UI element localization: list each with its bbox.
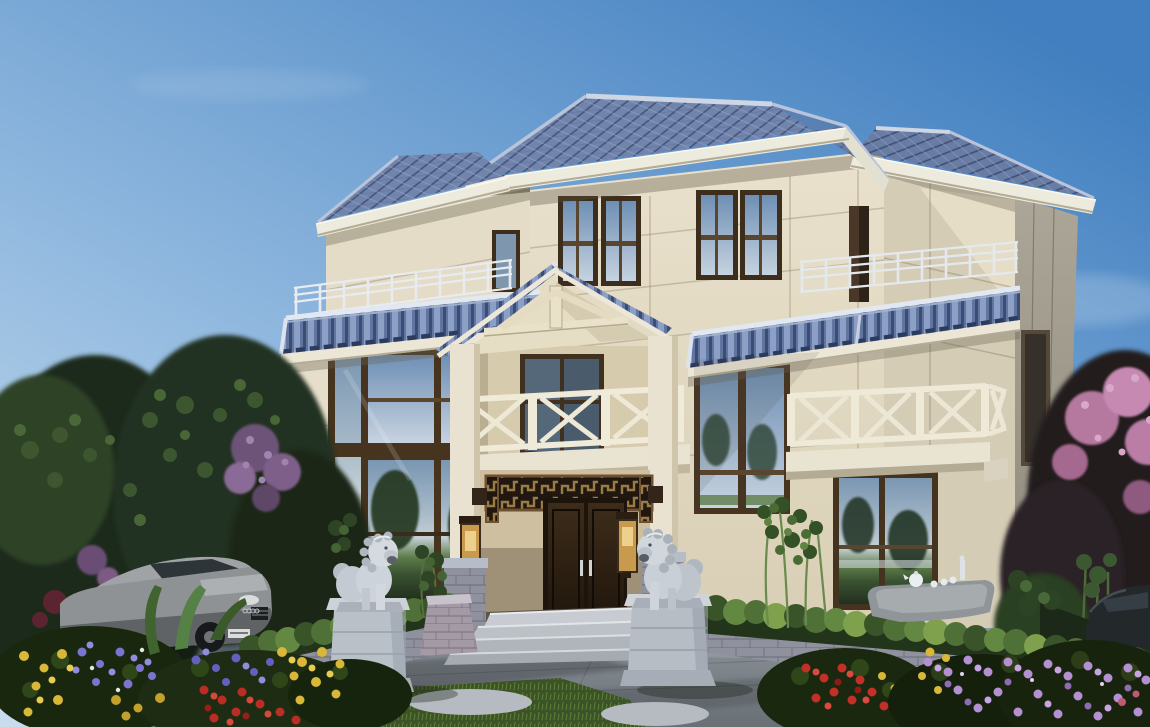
villa-rendering-stage: Daytime architectural rendering of a thr…: [0, 0, 1150, 727]
door-handle-left: [580, 560, 583, 576]
entrance-double-door: [543, 498, 627, 626]
door-handle-right: [589, 560, 592, 576]
wall-lantern-right: [616, 512, 638, 578]
